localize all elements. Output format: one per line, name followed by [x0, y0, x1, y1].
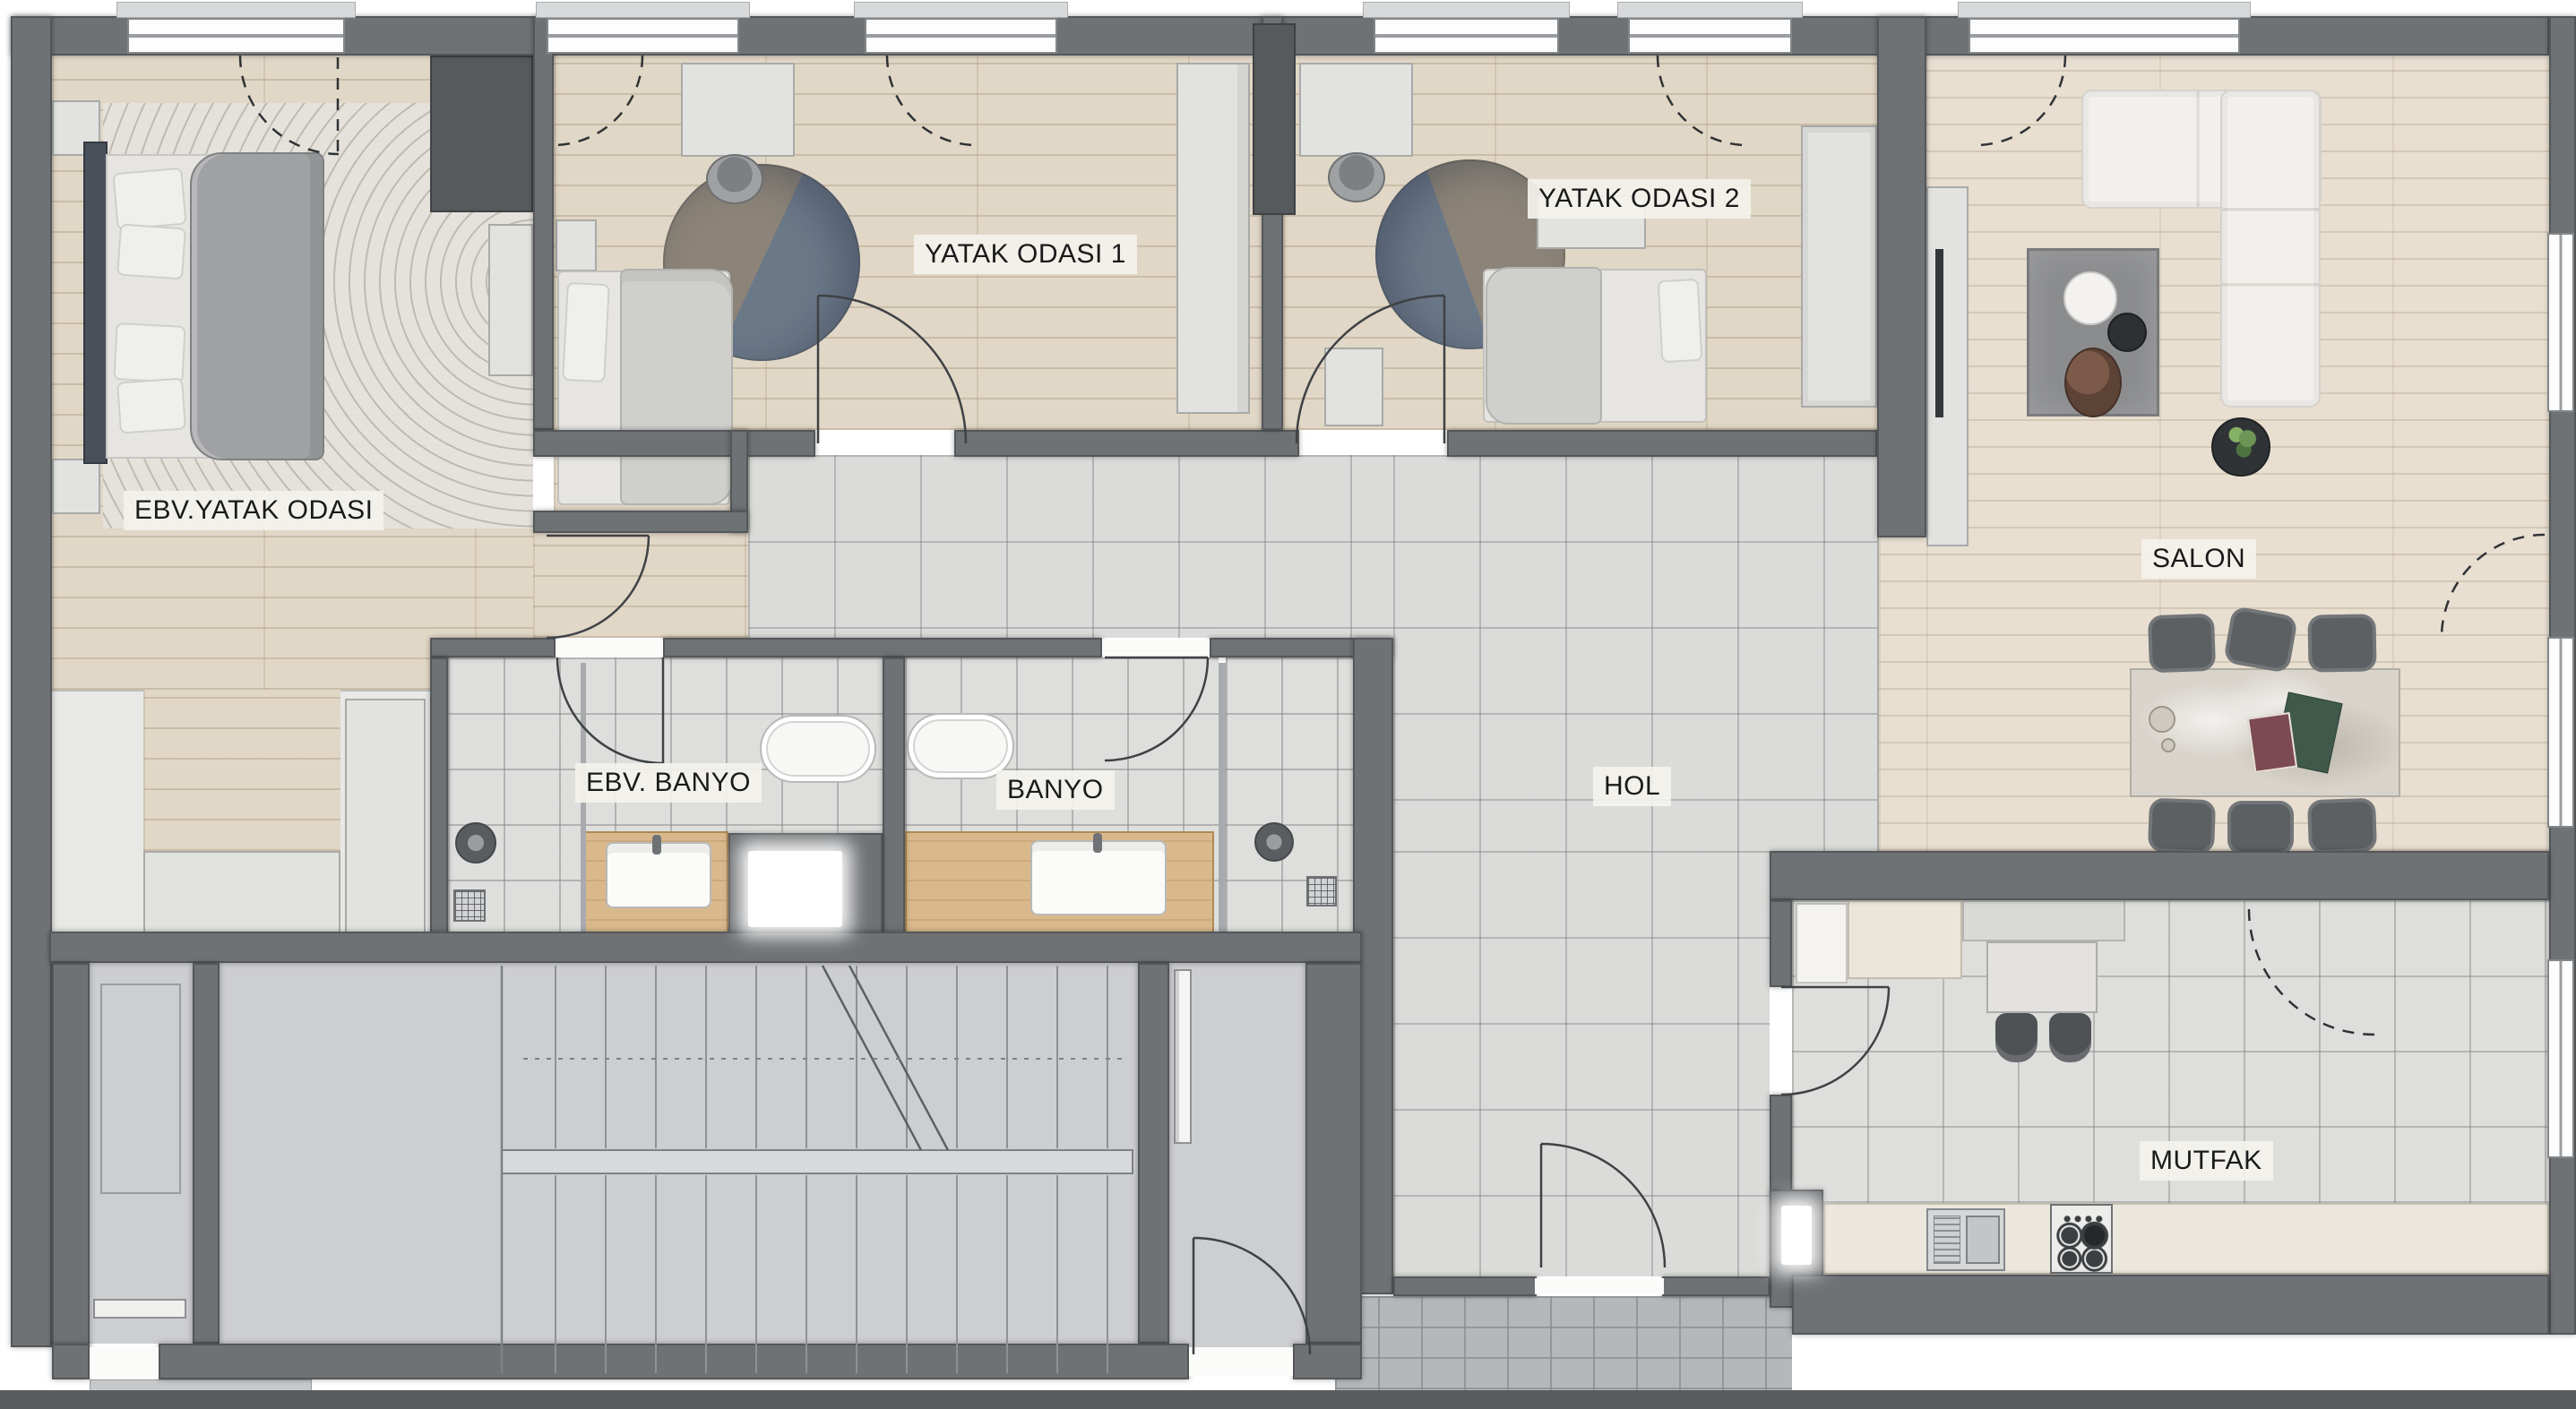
- toilet: [760, 715, 876, 783]
- wall: [1770, 900, 1792, 987]
- pillow: [116, 377, 186, 434]
- window-sill: [854, 2, 1068, 18]
- wall: [1877, 16, 1926, 537]
- wall: [533, 511, 748, 533]
- door-threshold: [1102, 640, 1210, 656]
- floor-plan: EBV.YATAK ODASI YATAK ODASI 1 YATAK ODAS…: [0, 0, 2576, 1409]
- window: [2547, 637, 2574, 828]
- wall: [11, 16, 52, 1347]
- pillow: [562, 282, 610, 382]
- kitchen-counter: [1962, 900, 2125, 941]
- floor-drain-icon: [1306, 876, 1337, 906]
- faucet-icon: [652, 835, 661, 855]
- window: [2547, 233, 2574, 412]
- wall: [1138, 963, 1169, 1344]
- bar-stool: [2049, 1013, 2091, 1062]
- wall: [954, 430, 1299, 457]
- salon-hall-passage-floor: [1877, 537, 1926, 851]
- desk: [1299, 63, 1413, 157]
- window: [1374, 18, 1559, 54]
- wall: [430, 657, 448, 949]
- shower-head-icon: [455, 822, 496, 863]
- wardrobe: [430, 56, 533, 212]
- kitchen-sink: [1926, 1208, 2005, 1271]
- duvet: [190, 152, 324, 460]
- stairwell-floor: [220, 963, 1138, 1344]
- blanket: [1486, 267, 1602, 425]
- wall: [1792, 1275, 2549, 1335]
- radiator: [1174, 969, 1192, 1144]
- dining-chair: [2307, 614, 2376, 672]
- bottom-facade-band: [0, 1390, 2576, 1409]
- tv: [1935, 249, 1943, 417]
- bar-stool: [1995, 1013, 2038, 1062]
- wall: [1393, 1276, 1537, 1296]
- desk-chair: [706, 154, 763, 204]
- coffee-table: [2107, 313, 2147, 352]
- closet-cabinet: [345, 699, 426, 941]
- cabinet: [1324, 348, 1383, 426]
- sink-drainboard: [1934, 1216, 1960, 1264]
- wall: [1447, 430, 1877, 457]
- window: [1628, 18, 1792, 54]
- sink-basin: [1966, 1216, 2000, 1264]
- building-entry-gap: [90, 1347, 159, 1378]
- wardrobe: [1176, 63, 1250, 414]
- label-hall: HOL: [1593, 767, 1671, 806]
- faucet-icon: [1093, 833, 1102, 853]
- dining-chair: [2227, 801, 2294, 855]
- window-sill: [116, 2, 356, 18]
- label-bath: BANYO: [996, 770, 1115, 810]
- wall: [159, 1344, 1189, 1379]
- candle-decor: [2149, 706, 2175, 733]
- shower-glass-partition: [1219, 663, 1226, 945]
- wall: [193, 963, 220, 1344]
- blanket: [620, 269, 733, 505]
- coffee-table: [2063, 271, 2117, 325]
- label-master-bedroom: EBV.YATAK ODASI: [124, 491, 383, 530]
- wall: [52, 1344, 90, 1379]
- master-closet-niche-floor: [143, 690, 340, 851]
- kitchen-counter: [1848, 900, 1962, 979]
- wall: [1305, 963, 1362, 1344]
- floor-drain-icon: [453, 889, 486, 922]
- door-threshold: [1189, 1347, 1293, 1376]
- candle-decor: [2161, 738, 2175, 752]
- fridge: [1796, 903, 1848, 984]
- label-bedroom-1: YATAK ODASI 1: [914, 235, 1137, 274]
- dining-chair: [2148, 614, 2216, 674]
- window-sill: [1617, 2, 1803, 18]
- wall: [49, 932, 1362, 963]
- wall: [430, 638, 556, 657]
- ventilation-shaft: [748, 851, 842, 927]
- book: [2247, 712, 2297, 773]
- potted-plant: [2211, 417, 2270, 477]
- stove-cooktop: [2050, 1204, 2113, 1274]
- wall: [1293, 1344, 1362, 1379]
- bed-headboard: [83, 142, 108, 464]
- room-hall-floor-lower: [1393, 851, 1770, 1276]
- ventilation-shaft: [1781, 1206, 1812, 1265]
- pillow: [113, 322, 185, 383]
- window: [865, 18, 1057, 54]
- shower-head-icon: [1254, 822, 1294, 862]
- label-bedroom-2: YATAK ODASI 2: [1528, 179, 1751, 219]
- window-sill: [536, 2, 750, 18]
- wall: [1770, 851, 2549, 900]
- radiator: [93, 1299, 186, 1319]
- tv-unit: [1926, 186, 1969, 546]
- pillow: [112, 168, 186, 231]
- pillow: [116, 223, 186, 279]
- window: [127, 18, 345, 54]
- window-sill: [1363, 2, 1570, 18]
- label-salon: SALON: [2141, 539, 2256, 579]
- kitchen-island: [1986, 941, 2098, 1013]
- door-threshold: [556, 640, 663, 656]
- nightstand: [556, 219, 597, 271]
- window: [1969, 18, 2240, 54]
- wall: [533, 16, 554, 430]
- wall: [883, 657, 905, 945]
- dining-chair: [2148, 798, 2216, 855]
- desk: [681, 63, 795, 157]
- shower-glass-partition: [581, 663, 586, 945]
- label-master-bath: EBV. BANYO: [575, 763, 762, 803]
- wall: [52, 963, 90, 1347]
- pillow: [1658, 279, 1703, 363]
- toilet: [907, 713, 1014, 779]
- coffee-table: [2064, 348, 2122, 417]
- elevator-cab-outline: [100, 984, 181, 1194]
- wardrobe: [1801, 125, 1877, 408]
- dining-chair: [2223, 606, 2298, 674]
- wall: [1662, 1276, 1770, 1296]
- dresser: [488, 224, 533, 376]
- entrance-door-threshold: [1535, 1278, 1664, 1294]
- wall: [663, 638, 1102, 657]
- window: [547, 18, 739, 54]
- sofa-section: [2220, 90, 2321, 408]
- master-entry-vestibule-floor: [533, 533, 748, 638]
- nightstand: [52, 459, 100, 514]
- dining-chair: [2307, 798, 2377, 855]
- wardrobe: [1253, 23, 1296, 215]
- window: [2547, 959, 2574, 1158]
- corridor-floor: [748, 455, 1393, 638]
- label-kitchen: MUTFAK: [2140, 1141, 2273, 1181]
- window-sill: [1958, 2, 2251, 18]
- desk-chair: [1328, 152, 1385, 202]
- wall: [533, 430, 815, 457]
